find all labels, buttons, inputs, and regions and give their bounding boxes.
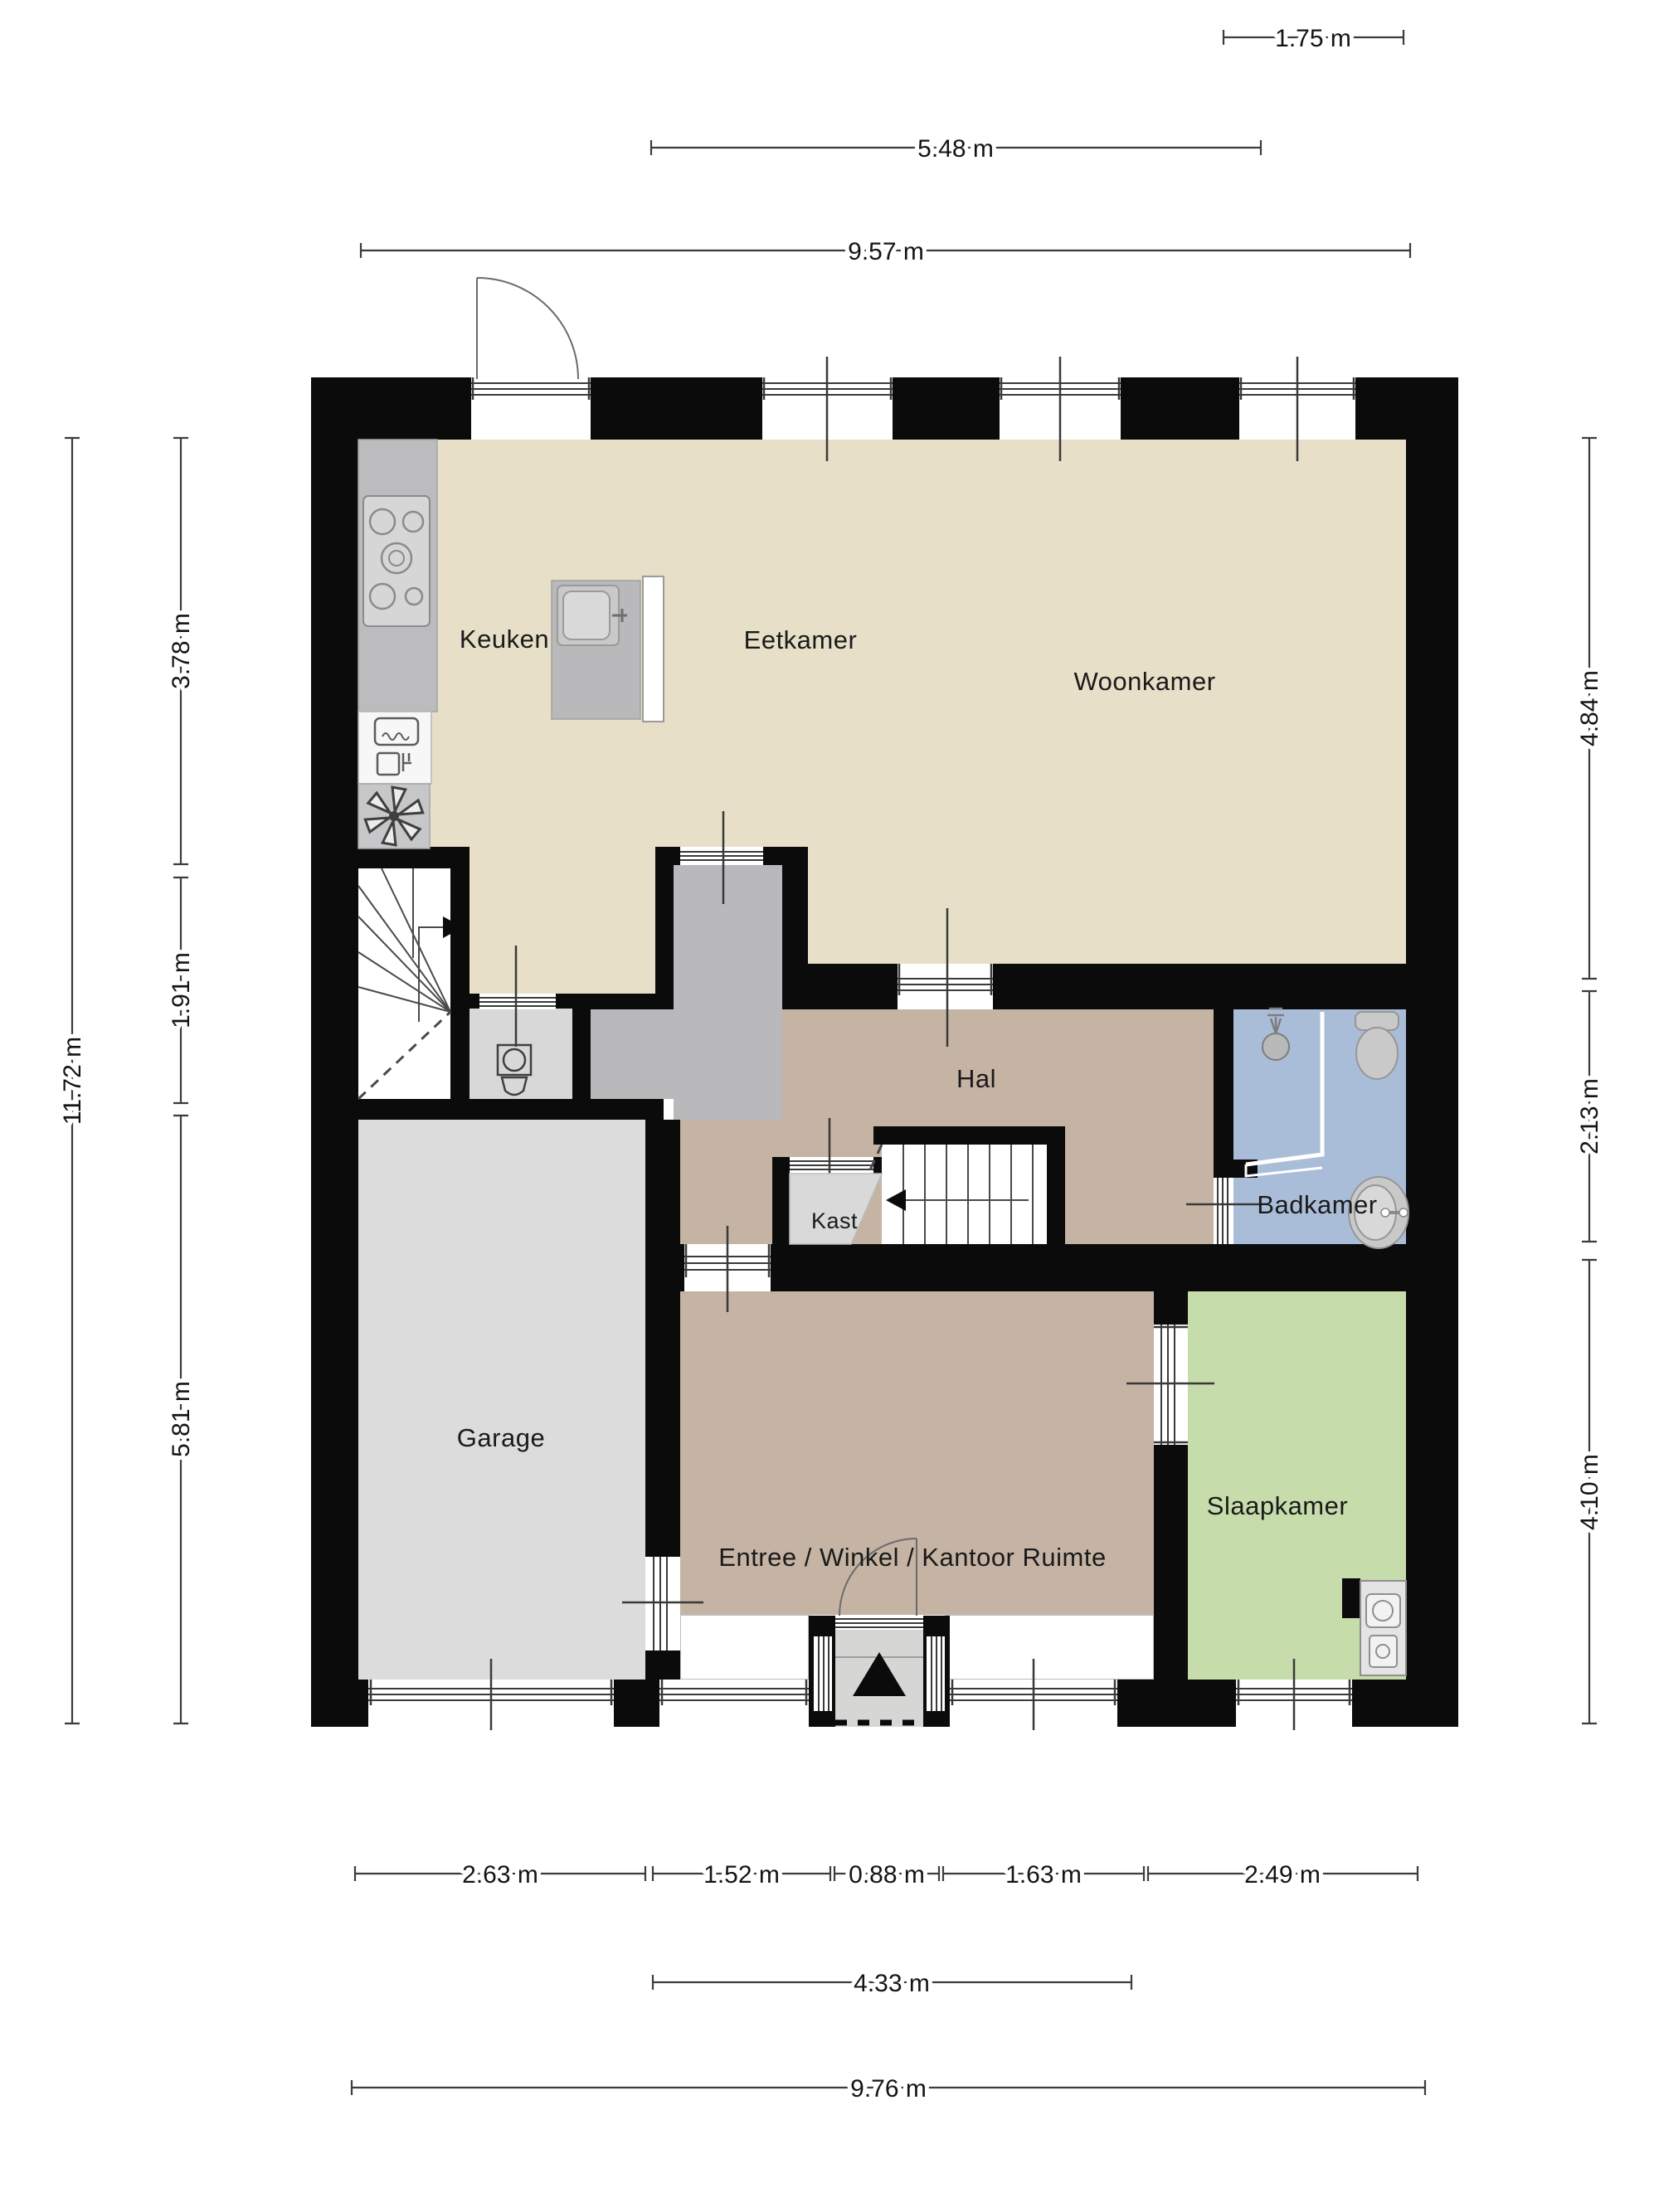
hall-entree-wall: [771, 1244, 1410, 1291]
dim-right-4-84: 4.84 m: [1576, 438, 1603, 979]
hal-label: Hal: [956, 1064, 996, 1093]
extractor-fan-icon: [358, 784, 430, 848]
dim-bottom-4-33: 4.33 m: [653, 1970, 1131, 1997]
garage-label: Garage: [457, 1423, 545, 1452]
porch-side-window: [927, 1636, 945, 1711]
keuken-label: Keuken: [460, 625, 549, 654]
bedroom-west-wall: [1154, 1445, 1188, 1680]
shop-window-ledge-right: [946, 1615, 1154, 1680]
slaapkamer-label: Slaapkamer: [1207, 1491, 1348, 1520]
floorplan-drawing: Keuken Eetkamer Woonkamer Hal Kast Badka…: [0, 0, 1659, 2212]
eetkamer-label: Eetkamer: [744, 625, 858, 654]
svg-text:1.52 m: 1.52 m: [703, 1861, 780, 1889]
stair-top-wall: [873, 1126, 1065, 1145]
corridor-floor-horizontal: [591, 1009, 782, 1099]
wc-floor: [469, 1009, 572, 1099]
dim-right-2-13: 2.13 m: [1576, 991, 1603, 1242]
door-swing-arc: [477, 278, 578, 379]
kitchen-island: [552, 576, 664, 722]
entree-label: Entree / Winkel / Kantoor Ruimte: [718, 1543, 1106, 1572]
hall-floor-west: [680, 1120, 782, 1244]
kitchen-door-opening: [471, 278, 591, 440]
dim-top-1-75: 1.75 m: [1224, 25, 1404, 52]
garage-east-wall: [645, 1120, 680, 1557]
dim-left-3-78: 3.78 m: [168, 438, 195, 864]
kitchen-pocket-floor: [469, 848, 655, 994]
badkamer-label: Badkamer: [1257, 1190, 1377, 1219]
dim-bottom-2-49: 2.49 m: [1148, 1861, 1418, 1889]
bedroom-fixture: [1360, 1581, 1406, 1675]
svg-text:9.57 m: 9.57 m: [848, 238, 924, 265]
west-wall: [311, 377, 358, 1727]
svg-text:5.48 m: 5.48 m: [917, 135, 994, 163]
kast-label: Kast: [811, 1208, 858, 1233]
dim-right-4-10: 4.10 m: [1576, 1260, 1603, 1723]
svg-text:3.78 m: 3.78 m: [168, 613, 195, 689]
dim-bottom-2-63: 2.63 m: [355, 1861, 645, 1889]
dim-bottom-0-88: 0.88 m: [834, 1861, 939, 1889]
toilet-icon: [1355, 1012, 1399, 1079]
svg-text:5.81 m: 5.81 m: [168, 1381, 195, 1457]
sink-icon: [557, 586, 627, 645]
bedroom-fixture-stub-wall: [1342, 1578, 1360, 1618]
dim-top-9-57: 9.57 m: [361, 238, 1410, 265]
svg-text:4.84 m: 4.84 m: [1576, 670, 1603, 746]
dim-bottom-1-63: 1.63 m: [943, 1861, 1144, 1889]
svg-text:2.13 m: 2.13 m: [1576, 1078, 1603, 1155]
svg-text:4.10 m: 4.10 m: [1576, 1454, 1603, 1530]
stove-icon: [363, 496, 430, 626]
dim-bottom-9-76: 9.76 m: [352, 2075, 1425, 2103]
svg-text:2.63 m: 2.63 m: [462, 1861, 538, 1889]
dim-left-11-72: 11.72 m: [59, 438, 86, 1723]
garage-floor: [358, 1120, 645, 1680]
dim-top-5-48: 5.48 m: [651, 135, 1261, 163]
floorplan-page: Keuken Eetkamer Woonkamer Hal Kast Badka…: [0, 0, 1659, 2212]
dim-left-1-91: 1.91 m: [168, 878, 195, 1103]
east-wall: [1406, 377, 1458, 1727]
svg-text:1.63 m: 1.63 m: [1005, 1861, 1082, 1889]
closet-wall: [772, 1157, 790, 1274]
shop-window-ledge-left: [680, 1615, 809, 1680]
svg-text:9.76 m: 9.76 m: [850, 2075, 927, 2103]
dim-left-5-81: 5.81 m: [168, 1116, 195, 1723]
svg-text:1.75 m: 1.75 m: [1275, 25, 1351, 52]
svg-text:11.72 m: 11.72 m: [59, 1037, 86, 1125]
svg-text:2.49 m: 2.49 m: [1244, 1861, 1321, 1889]
window: [659, 1680, 809, 1727]
garage-top-wall: [358, 1099, 664, 1120]
svg-text:4.33 m: 4.33 m: [854, 1970, 930, 1997]
svg-text:1.91 m: 1.91 m: [168, 952, 195, 1028]
appliance-cabinet: [358, 712, 431, 784]
woonkamer-label: Woonkamer: [1073, 667, 1215, 696]
bathroom-west-wall: [1214, 1009, 1233, 1161]
svg-text:0.88 m: 0.88 m: [849, 1861, 925, 1889]
dim-bottom-1-52: 1.52 m: [653, 1861, 830, 1889]
porch-side-window: [814, 1636, 832, 1711]
